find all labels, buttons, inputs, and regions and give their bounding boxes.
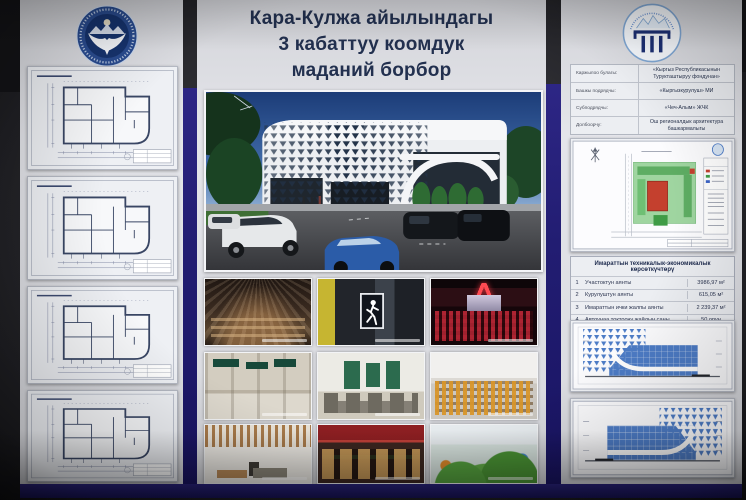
photo-reception-office	[317, 352, 425, 420]
photo-fitness-corridor	[317, 278, 425, 346]
orange-chairs	[435, 381, 533, 415]
blue-car	[325, 236, 399, 270]
info-value: Ош регионалдык архитектура башкармалыгы	[639, 117, 734, 134]
info-value: «Кыргызкурулуш» МИ	[639, 83, 734, 99]
runner-poster	[360, 287, 384, 335]
row-number: 1	[571, 280, 583, 286]
photo-cafe	[317, 424, 425, 484]
info-value: «Кыргыз Республикасынын Турукташтыруу фо…	[639, 65, 734, 82]
photo-lecture-hall	[430, 352, 538, 420]
elevation-drawing-2	[570, 398, 735, 478]
info-label: Долбоорчу:	[571, 117, 639, 134]
photo-caption	[262, 413, 307, 416]
indicator-value: 3986,97 м²	[687, 279, 734, 287]
photo-caption	[375, 339, 420, 342]
photographed-presentation-board: Кара-Кулжа айылындагы 3 кабаттуу коомдук…	[0, 0, 746, 500]
title-line-1: Кара-Кулжа айылындагы	[197, 6, 546, 32]
hanging-signs	[213, 359, 301, 375]
floor-plan-sheet-3	[27, 286, 178, 384]
office-desks	[324, 393, 418, 413]
floor-plan-sheet-4	[27, 390, 178, 482]
photo-caption	[375, 477, 420, 480]
wood-slat-ceiling	[205, 425, 311, 447]
building-exterior-rendering	[204, 90, 543, 272]
center-panel: Кара-Кулжа айылындагы 3 кабаттуу коомдук…	[197, 0, 546, 484]
play-hills	[431, 425, 537, 483]
table-row: Каржылоо булагы: «Кыргыз Республикасынын…	[571, 65, 734, 83]
info-value: «Чеч-Алым» ЖЧК	[639, 100, 734, 116]
cafe-tables	[322, 449, 420, 479]
green-wall-panels	[344, 361, 400, 389]
row-number: 2	[571, 292, 583, 298]
red-seats	[435, 311, 533, 341]
indicators-title: Имараттын техникалык-экономикалык көрсөт…	[571, 259, 734, 276]
title-line-2: 3 кабаттуу коомдук	[197, 32, 546, 58]
photo-lobby-signage	[204, 352, 312, 420]
project-info-table: Каржылоо булагы: «Кыргыз Республикасынын…	[570, 64, 735, 135]
photo-cinema-hall	[430, 278, 538, 346]
info-label: Башкы подрядчы:	[571, 83, 639, 99]
title-line-3: маданий борбор	[197, 58, 546, 84]
divider-strip	[546, 84, 561, 484]
left-plans-panel	[20, 0, 183, 484]
poster-bottom-border	[20, 484, 742, 498]
indicator-label: Участоктун аянты	[583, 280, 687, 286]
indicator-label: Курулуштун аянты	[583, 292, 687, 298]
state-architecture-agency-logo-icon	[619, 2, 685, 64]
site-plan-sheet	[570, 138, 735, 252]
floor-plan-sheet-1	[27, 66, 178, 170]
table-row: Долбоорчу: Ош регионалдык архитектура ба…	[571, 117, 734, 134]
photo-kids-playroom	[430, 424, 538, 484]
table-row: Субподрядчы: «Чеч-Алым» ЖЧК	[571, 100, 734, 117]
photo-caption	[375, 413, 420, 416]
table-row: 3 Имараттын ички жалпы аянты 2 239,37 м²	[571, 301, 734, 314]
photo-caption	[262, 339, 307, 342]
info-label: Каржылоо булагы:	[571, 65, 639, 82]
photo-caption	[488, 339, 533, 342]
elevation-drawing-1	[570, 320, 735, 392]
lounge-seating	[211, 313, 305, 339]
table-row: 2 Курулуштун аянты 615,05 м²	[571, 289, 734, 302]
board-title: Кара-Кулжа айылындагы 3 кабаттуу коомдук…	[197, 6, 546, 84]
photo-caption	[262, 477, 307, 480]
row-number: 3	[571, 305, 583, 311]
divider-strip	[183, 88, 197, 484]
info-label: Субподрядчы:	[571, 100, 639, 116]
photo-caption	[488, 413, 533, 416]
indicator-value: 615,05 м²	[687, 291, 734, 299]
floor-plan-sheet-2	[27, 176, 178, 280]
photo-caption	[488, 477, 533, 480]
indicator-value: 2 239,37 м²	[687, 304, 734, 312]
table-row: Башкы подрядчы: «Кыргызкурулуш» МИ	[571, 83, 734, 100]
right-info-panel: Каржылоо булагы: «Кыргыз Республикасынын…	[561, 0, 742, 484]
indicator-label: Имараттын ички жалпы аянты	[583, 305, 687, 311]
table-row: 1 Участоктун аянты 3986,97 м²	[571, 276, 734, 289]
cinema-screen	[467, 295, 501, 312]
library-furniture	[211, 456, 305, 478]
dark-cars	[403, 210, 510, 241]
photo-library-room	[204, 424, 312, 484]
kyrgyz-republic-emblem-icon	[75, 4, 139, 68]
indicators-table: Имараттын техникалык-экономикалык көрсөт…	[570, 256, 735, 328]
photo-lounge-hall	[204, 278, 312, 346]
